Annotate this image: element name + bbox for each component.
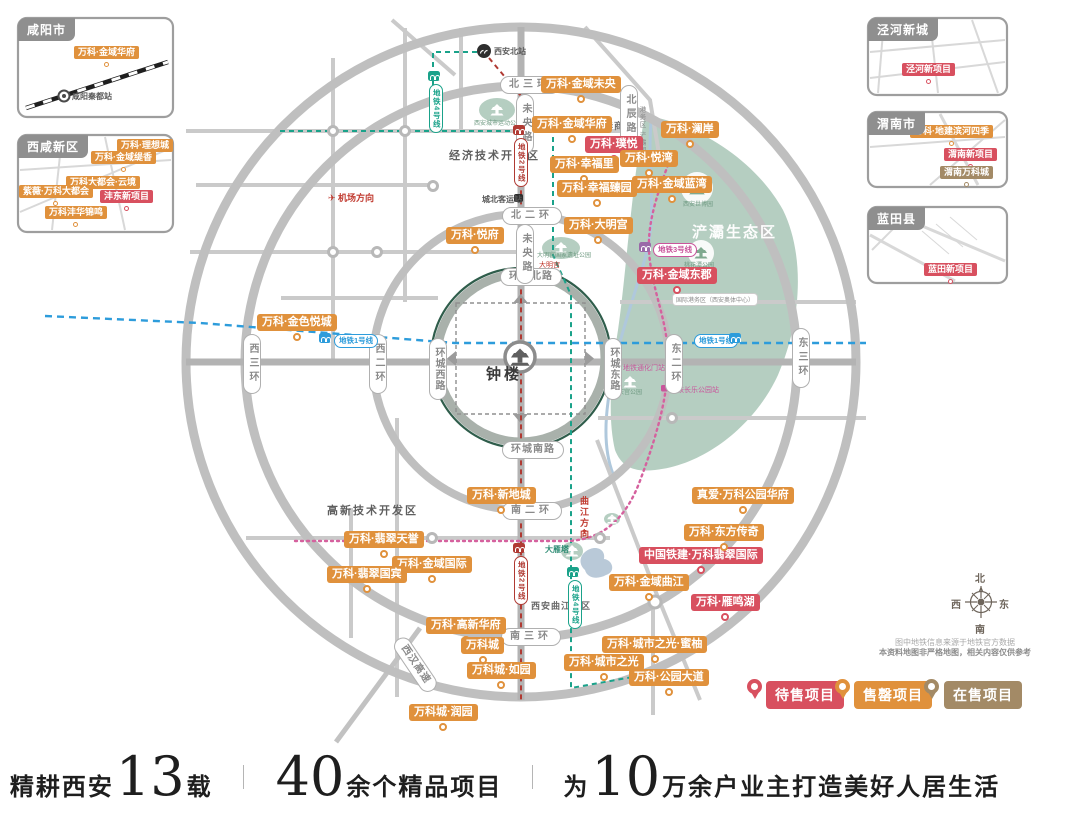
project-label: 万科·雁鸣湖: [691, 594, 760, 611]
metro-line-pill: 地铁1号线: [334, 334, 378, 348]
project-label: 万科·悦府: [446, 227, 504, 244]
inset-title: 泾河新城: [868, 18, 938, 41]
project-label: 中国铁建·万科翡翠国际: [639, 547, 763, 564]
road-name-pill: 环城西路: [429, 338, 447, 400]
footer-text: 余个精品项目: [346, 772, 502, 801]
station-label: 西安北站: [494, 46, 526, 57]
map-canvas: 北 东 南 西 图中地铁信息来源于地铁官方数据 本资料地图非严格地图，相关内容仅…: [0, 0, 1070, 821]
project-pin: [673, 286, 681, 294]
project-pin: [720, 543, 728, 551]
metro-logo-icon: [513, 543, 525, 553]
project-label: 万科城: [461, 637, 504, 654]
project-label: 万科·悦湾: [620, 150, 678, 167]
footer-divider: [532, 765, 533, 789]
metro-line-pill: 地铁2号线: [514, 138, 528, 187]
project-label: 万科·东方传奇: [684, 524, 764, 541]
project-pin: [739, 506, 747, 514]
footer-text: 为: [563, 772, 589, 801]
project-pin: [949, 141, 954, 146]
footer-number: 40: [276, 745, 345, 808]
project-label: 万科·高新华府: [426, 617, 506, 634]
project-pin: [577, 95, 585, 103]
project-pin: [668, 195, 676, 203]
project-pin: [686, 140, 694, 148]
project-pin: [124, 206, 129, 211]
road-name-pill: 南三环: [501, 628, 561, 646]
project-label: 万科·金域华府: [532, 116, 612, 133]
project-label: 万科·幸福臻园: [557, 180, 637, 197]
project-label: 渭南新项目: [944, 148, 997, 161]
project-label: 万科·金域东郡: [637, 267, 717, 284]
compass-north-label: 北: [975, 570, 985, 585]
project-pin: [293, 333, 301, 341]
project-label: 万科·翡翠国宾: [327, 566, 407, 583]
legend-label: 在售项目: [944, 681, 1022, 709]
metro-station-label: 地铁通化门站: [623, 363, 665, 373]
footer-text: 载: [187, 772, 213, 801]
metro-logo-icon: [319, 333, 331, 343]
project-label: 万科·幸福里: [550, 156, 619, 173]
compass-icon: [965, 586, 997, 618]
metro-line-4: [280, 131, 655, 688]
project-label: 泾河新项目: [902, 63, 955, 76]
road-name-pill: 东三环: [792, 328, 810, 388]
legend-label: 待售项目: [766, 681, 844, 709]
project-label: 万科·金域缇香: [91, 151, 156, 164]
project-label: 万科·新地城: [467, 487, 536, 504]
bell-tower-label: 钟楼: [486, 363, 522, 384]
project-pin: [568, 135, 576, 143]
inset-title: 蓝田县: [868, 207, 925, 230]
compass-west-label: 西: [951, 596, 961, 611]
project-pin: [665, 688, 673, 696]
project-label: 真爱·万科公园华府: [692, 487, 794, 504]
project-label: 万科·城市之光·蜜柚: [602, 636, 707, 653]
metro-line-pill: 地铁3号线: [653, 243, 697, 257]
project-label: 万科·金域未央: [541, 76, 621, 93]
project-pin: [697, 566, 705, 574]
park-label: 西安世博园: [683, 199, 713, 208]
project-label: 万科·澜岸: [661, 121, 719, 138]
metro-logo-icon: [567, 567, 579, 577]
road-name-pill: 未央路: [516, 224, 534, 284]
project-label: 万科·金域华府: [74, 46, 139, 59]
project-label: 渭南万科城: [940, 166, 993, 179]
station-label: 城北客运站: [482, 194, 522, 205]
project-label: 万科·翡翠天誉: [344, 531, 424, 548]
project-pin: [380, 550, 388, 558]
project-label: 紫薇·万科大都会: [19, 185, 93, 198]
project-pin: [645, 593, 653, 601]
project-pin: [593, 199, 601, 207]
eco-zone-label: 浐灞生态区: [692, 221, 777, 242]
park-label: 大明宫国家遗址公园: [537, 250, 591, 259]
footer-text: 万余户业主打造美好人居生活: [662, 772, 1000, 801]
project-label: 沣东新项目: [100, 190, 153, 203]
disclaimer-line2: 本资料地图非严格地图，相关内容仅供参考: [850, 647, 1060, 658]
metro-logo-icon: [513, 125, 525, 135]
metro-line-pill: 地铁2号线: [514, 556, 528, 605]
footer-number: 13: [116, 745, 185, 808]
project-pin: [600, 673, 608, 681]
road-name-pill: 东二环: [665, 334, 683, 394]
road-name-pill: 环城东路: [604, 338, 622, 400]
project-label: 万科·金域蓝湾: [632, 176, 712, 193]
landmark-label: ▼: [581, 529, 588, 536]
legend-label: 售罄项目: [854, 681, 932, 709]
project-pin: [964, 182, 969, 187]
project-pin: [104, 62, 109, 67]
footer-divider: [243, 765, 244, 789]
metro-logo-icon: [729, 333, 741, 343]
project-label: 万科城·润园: [409, 704, 478, 721]
project-label: 万科沣华锦鸣: [45, 206, 107, 219]
station-label: 咸阳秦都站: [72, 91, 112, 102]
north-station-icon: [477, 44, 491, 58]
project-label: 万科·金色悦城: [257, 314, 337, 331]
road-name-pill: 西三环: [243, 334, 261, 394]
footer-number: 10: [591, 745, 660, 808]
road-sign-label: 国际港务区（西安奥体中心）: [672, 293, 758, 306]
project-label: 蓝田新项目: [924, 263, 977, 276]
project-pin: [948, 279, 953, 284]
project-label: 万科·公园大道: [629, 669, 709, 686]
footer-tagline: 精耕西安13载40余个精品项目为10万余户业主打造美好人居生活: [0, 750, 1010, 804]
project-pin: [926, 79, 931, 84]
direction-label: ✈ 机场方向: [328, 191, 374, 204]
metro-logo-icon: [428, 71, 440, 81]
inset-title: 渭南市: [868, 112, 925, 135]
metro-logo-icon: [639, 242, 651, 252]
project-pin: [121, 167, 126, 172]
road-name-pill: 南二环: [502, 502, 562, 520]
project-pin: [471, 246, 479, 254]
district-label: 高新技术开发区: [327, 502, 418, 518]
inset-title: 西咸新区: [18, 135, 88, 158]
project-pin: [73, 222, 78, 227]
road-name-pill: 环城南路: [502, 441, 564, 459]
project-pin: [651, 655, 659, 663]
project-label: 万科城·如园: [467, 662, 536, 679]
road-name-pill: 北二环: [502, 207, 562, 225]
landmark-label: 大雁塔: [545, 544, 569, 555]
legend-pin-icon: [835, 679, 850, 694]
metro-line-pill: 地铁4号线: [429, 84, 443, 133]
compass-south-label: 南: [975, 621, 985, 636]
project-pin: [428, 575, 436, 583]
project-pin: [363, 585, 371, 593]
project-label: 万科·大明宫: [564, 217, 633, 234]
compass-east-label: 东: [999, 596, 1009, 611]
metro-line-pill: 地铁4号线: [568, 580, 582, 629]
legend-pin-icon: [924, 679, 939, 694]
qujiang-lake: [581, 548, 613, 578]
legend-pin-icon: [747, 679, 762, 694]
inset-title: 咸阳市: [18, 18, 75, 41]
footer-text: 精耕西安: [10, 772, 114, 801]
project-label: 万科·金域曲江: [609, 574, 689, 591]
